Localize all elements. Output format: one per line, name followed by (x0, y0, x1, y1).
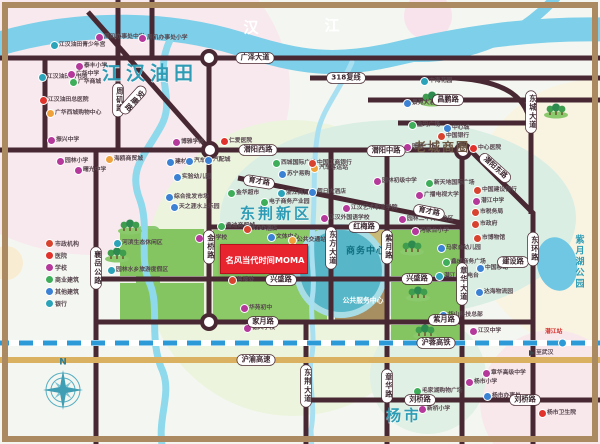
poi-label: 市税务局 (480, 209, 503, 215)
poi-label: 假日大酒店 (317, 189, 346, 195)
legend-icon (46, 240, 53, 247)
poi-label: 中心医院 (478, 145, 501, 151)
poi-icon (244, 226, 251, 233)
poi-marker: 华苑初中 (241, 303, 289, 313)
poi-icon (466, 379, 473, 386)
poi-label: 广华西城购物中心 (55, 110, 101, 116)
poi-marker: 潜江中学 (473, 196, 521, 206)
poi-icon (438, 133, 445, 140)
poi-label: 曙光中学 (83, 167, 106, 173)
poi-label: 江汉油田总医院 (48, 97, 89, 103)
poi-icon (443, 259, 450, 266)
road-label: 紫月路 (428, 314, 460, 326)
poi-marker: 至武汉 (529, 348, 566, 358)
poi-label: 园林小学 (65, 158, 88, 164)
poi-icon (416, 192, 423, 199)
poi-icon (268, 234, 275, 241)
poi-label: 中国银行 (446, 133, 469, 139)
poi-icon (472, 209, 479, 216)
park-icon (117, 219, 143, 239)
poi-label: 综合批发市场 (174, 194, 209, 200)
poi-marker: 广华商城 (70, 77, 118, 87)
poi-icon (409, 122, 416, 129)
poi-label: 园林初级中学 (382, 178, 417, 184)
road-label: 潜阳中路 (367, 145, 406, 157)
poi-icon (205, 157, 212, 164)
road-label: 潜阳西路 (239, 144, 278, 156)
legend-icon (46, 252, 53, 259)
poi-marker: 冯家台小学 (412, 226, 470, 236)
poi-icon (196, 235, 203, 242)
poi-label: 苏宁易购 (287, 171, 310, 177)
poi-icon (421, 78, 428, 85)
poi-label: 实验幼儿园 (182, 174, 211, 180)
area-label: 东荆新区 (240, 207, 312, 222)
poi-marker: 假日大酒店 (309, 187, 367, 197)
poi-icon (404, 100, 411, 107)
road-label: 章华路 (381, 369, 393, 404)
area-label: 商务中心 (346, 248, 386, 257)
legend-label: 市政机构 (55, 239, 79, 248)
poi-marker: 中国建设银行 (474, 185, 542, 195)
poi-label: 市博物馆 (482, 235, 505, 241)
poi-marker: 市税务局 (472, 207, 520, 217)
legend-label: 学校 (55, 263, 67, 272)
poi-icon (70, 79, 77, 86)
legend-icon (46, 276, 53, 283)
poi-icon (419, 406, 426, 413)
poi-icon (472, 221, 479, 228)
legend-item: 学校 (46, 261, 95, 273)
poi-icon (167, 159, 174, 166)
poi-marker: 汽配城 (205, 155, 243, 165)
road-label: 318复线 (326, 72, 366, 84)
poi-label: 中海花园 (429, 78, 452, 84)
poi-icon (75, 167, 82, 174)
road-label: 刘桥路 (404, 394, 436, 406)
project-marker: 名风当代时间MOMA (220, 244, 308, 274)
poi-marker: 海鸥商贸城 (106, 154, 164, 164)
poi-label: 章华高级中学 (491, 370, 526, 376)
poi-marker: 江汉中学 (470, 326, 518, 336)
poi-icon (474, 235, 481, 242)
poi-marker: 中心医院 (470, 143, 518, 153)
poi-label: 新天地国际广场 (434, 180, 475, 186)
poi-marker: 园林二小 (404, 142, 452, 152)
poi-label: 汽配城 (213, 157, 230, 163)
legend-item: 商业建筑 (46, 273, 95, 285)
poi-marker: 中海花园 (421, 76, 469, 86)
poi-marker: 综合批发市场 (166, 192, 234, 202)
poi-marker: 潜江广播电台 (436, 271, 504, 281)
area-label: 江 (324, 19, 341, 34)
poi-icon (186, 158, 193, 165)
poi-marker: 潜江站 (544, 327, 575, 337)
poi-label: 振兴中学 (56, 137, 79, 143)
poi-icon (221, 138, 228, 145)
area-label: 紫月湖公园 (574, 235, 583, 290)
poi-marker: 马家台幼儿园 (438, 243, 506, 253)
legend-item: 银行 (46, 297, 95, 309)
road-label: 金桥路 (203, 230, 215, 265)
legend-label: 医院 (55, 251, 67, 260)
poi-icon (474, 187, 481, 194)
park-icon (399, 240, 425, 260)
park-icon (405, 286, 431, 306)
road-label: 沪渝高速 (237, 354, 276, 366)
poi-icon (309, 189, 316, 196)
poi-icon (529, 350, 535, 356)
poi-icon (470, 145, 477, 152)
poi-icon (40, 97, 47, 104)
poi-marker: 天之涯水上乐园 (171, 202, 249, 212)
poi-icon (39, 74, 46, 81)
poi-icon (173, 139, 180, 146)
poi-label: 周矶办事处小学 (147, 35, 188, 41)
poi-marker: 周矶办事处小学 (139, 33, 217, 43)
road-label: 东环路 (527, 232, 539, 267)
road-label: 刘桥路 (509, 394, 541, 406)
area-label: 公共服务中心 (343, 298, 384, 305)
poi-label: 中国工商银行 (317, 160, 352, 166)
poi-marker: 曙光中学 (75, 165, 123, 175)
poi-icon (278, 190, 285, 197)
poi-icon (374, 178, 381, 185)
park-icon (104, 247, 130, 267)
legend-item: 医院 (46, 249, 95, 261)
poi-label: 中国建设银行 (482, 187, 517, 193)
poi-icon (436, 273, 443, 280)
poi-marker: 售楼处 (229, 275, 267, 285)
poi-icon (470, 328, 477, 335)
poi-icon (273, 160, 280, 167)
road-label: 章华大道 (456, 262, 468, 305)
poi-icon (139, 35, 146, 42)
poi-label: 金玛广场 (417, 122, 440, 128)
poi-label: 江汉油田青少年宫 (59, 42, 105, 48)
poi-marker: 博雅学校 (173, 137, 221, 147)
road-label: 建设路 (497, 256, 529, 268)
poi-label: 杨市卫生院 (547, 410, 576, 416)
poi-label: 冯家台小学 (420, 228, 449, 234)
poi-label: 市政府 (480, 221, 497, 227)
legend-label: 商业建筑 (55, 275, 79, 284)
poi-marker: 江汉油田总医院 (40, 95, 118, 105)
poi-label: 天之涯水上乐园 (179, 204, 220, 210)
poi-icon (57, 158, 64, 165)
poi-label: 新桥小学 (427, 406, 450, 412)
road-label: 家月路 (247, 316, 279, 328)
area-label: 杨市 (386, 409, 422, 424)
poi-icon (309, 160, 316, 167)
poi-marker (559, 340, 567, 347)
legend-label: 银行 (55, 299, 67, 308)
poi-label: 售楼处 (237, 277, 254, 283)
poi-marker: 实验幼儿园 (174, 172, 232, 182)
poi-label: 马家台幼儿园 (446, 245, 481, 251)
poi-label: 江汉中学 (478, 328, 501, 334)
legend-icon (46, 288, 53, 295)
poi-icon (476, 289, 483, 296)
legend-item: 其他建筑 (46, 285, 95, 297)
poi-label: 金华超市 (236, 190, 259, 196)
poi-marker: 市博物馆 (474, 233, 522, 243)
poi-marker: 杨市卫生院 (539, 408, 597, 418)
poi-icon (108, 267, 115, 274)
poi-label: 仁爱医院 (229, 138, 252, 144)
poi-label: 江汉艺术职业学院 (351, 205, 397, 211)
road-label: 兴盛路 (401, 273, 433, 285)
poi-label: 至武汉 (536, 350, 553, 356)
poi-label: 广华商城 (78, 79, 101, 85)
poi-label: 河滨生态休闲区 (122, 240, 163, 246)
poi-label: 毛家湖购物广场 (422, 388, 463, 394)
poi-label: 园林二小 (412, 144, 435, 150)
poi-label: 江汉外国语学校 (329, 215, 370, 221)
poi-icon (438, 245, 445, 252)
road-label: 广泽大道 (236, 52, 275, 64)
legend-item: 市政机构 (46, 237, 95, 249)
map-legend: 市政机构医院学校商业建筑其他建筑银行 (46, 237, 95, 309)
poi-icon (412, 228, 419, 235)
poi-icon (321, 215, 328, 222)
location-map: 汉江江汉油田东荆新区老城商圈杨市商务中心公共服务中心紫月湖公园N 江汉油田青少年… (0, 0, 600, 444)
poi-icon (289, 237, 296, 244)
poi-icon (539, 410, 546, 417)
poi-icon (483, 370, 490, 377)
road-label: 沪蓉高铁 (417, 337, 456, 349)
poi-icon (241, 305, 248, 312)
compass-icon (39, 366, 87, 414)
road-label: 紫月路 (381, 230, 393, 265)
poi-label: 博雅学校 (181, 139, 204, 145)
area-label: 汉 (243, 21, 260, 36)
legend-icon (46, 300, 53, 307)
poi-marker: 河滨生态休闲区 (114, 238, 192, 248)
poi-icon (343, 205, 350, 212)
road-label: 东城大道 (525, 90, 537, 133)
poi-icon (47, 110, 54, 117)
poi-label: 华苑初中 (249, 305, 272, 311)
poi-label: 达海物流园 (484, 289, 513, 295)
poi-icon (426, 180, 433, 187)
poi-icon (48, 137, 55, 144)
poi-icon (279, 171, 286, 178)
poi-marker: 振兴中学 (48, 135, 96, 145)
road-label: 兴盛路 (265, 274, 297, 286)
poi-icon (559, 340, 566, 347)
poi-marker: 市政府 (472, 219, 510, 229)
poi-label: 杨市小学 (474, 379, 497, 385)
poi-icon (114, 240, 121, 247)
poi-label: 潜江站 (545, 329, 562, 335)
poi-icon (229, 277, 236, 284)
poi-label: 电子商务产业园 (269, 199, 310, 205)
poi-label: 海鸥商贸城 (114, 156, 143, 162)
poi-icon (218, 223, 225, 230)
poi-icon (399, 216, 406, 223)
poi-marker: 达海物流园 (476, 287, 534, 297)
poi-marker: 中国银行 (438, 131, 486, 141)
poi-icon (51, 42, 58, 49)
poi-icon (473, 198, 480, 205)
poi-label: 园林水乡旅游度假区 (116, 267, 168, 273)
poi-marker: 苏宁易购 (279, 169, 327, 179)
poi-label: 公共交通站 (297, 237, 326, 243)
legend-label: 其他建筑 (55, 287, 79, 296)
poi-label: 广播电视大学 (424, 192, 459, 198)
poi-marker: 电子商务产业园 (261, 197, 339, 207)
poi-icon (171, 204, 178, 211)
poi-icon (106, 156, 113, 163)
poi-icon (96, 34, 103, 41)
poi-marker: 中国工商银行 (309, 158, 377, 168)
park-icon (543, 103, 569, 123)
poi-marker: 园林水乡旅游度假区 (108, 265, 206, 275)
road-label: 红梅路 (348, 221, 380, 233)
road-label: 东方大道 (325, 226, 337, 269)
poi-icon (228, 190, 235, 197)
project-name: 名风当代时间MOMA (226, 253, 305, 265)
road-label: 东荆大道 (300, 364, 312, 407)
legend-icon (46, 264, 53, 271)
poi-icon (166, 194, 173, 201)
poi-icon (261, 199, 268, 206)
poi-icon (174, 174, 181, 181)
poi-label: 潜江中学 (481, 198, 504, 204)
road-label: 昌鹏路 (432, 94, 464, 106)
